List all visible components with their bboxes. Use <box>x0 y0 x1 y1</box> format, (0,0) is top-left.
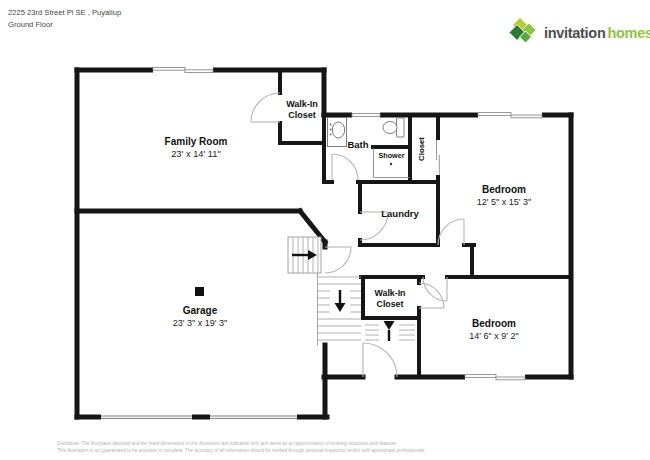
room-dims-garage: 23' 3" x 19' 3" <box>173 318 227 328</box>
room-label-walk-in-closet-mid-2: Closet <box>377 299 404 309</box>
room-label-bedroom-bottom: Bedroom <box>472 318 516 329</box>
header: 2225 23rd Street Pl SE , Puyallup Ground… <box>8 8 121 29</box>
room-label-family-room: Family Room <box>165 136 228 147</box>
room-dims-bedroom-right: 12' 5" x 15' 3" <box>477 197 531 207</box>
toilet-icon <box>383 118 404 137</box>
bedroom-right-door <box>438 219 464 245</box>
door-swings <box>251 93 464 377</box>
address-line-1: 2225 23rd Street Pl SE , Puyallup <box>8 8 121 17</box>
sink-icon <box>328 118 347 147</box>
bath-door <box>332 154 358 180</box>
logo-word-homes: homes <box>607 25 650 41</box>
room-label-walk-in-closet-mid-1: Walk-In <box>375 288 406 298</box>
room-dims-bedroom-bottom: 14' 6" x 9' 2" <box>469 331 518 341</box>
floor-plan-svg: 2225 23rd Street Pl SE , Puyallup Ground… <box>0 0 650 460</box>
invitation-homes-logo: invitationhomes <box>509 18 650 44</box>
disclaimer-line-1: Disclaimer: The floorplans depicted and … <box>57 441 397 446</box>
logo-wordmark: invitationhomes <box>544 25 650 41</box>
stairs-upper-run <box>288 237 321 273</box>
footer-disclaimer: Disclaimer: The floorplans depicted and … <box>57 441 425 453</box>
address-line-2: Ground Floor <box>8 20 53 29</box>
bedroom-bottom-window <box>465 374 525 381</box>
room-dims-family-room: 23' x 14' 11" <box>171 149 221 159</box>
garage-post <box>195 287 204 296</box>
room-label-walk-in-closet-top-2: Closet <box>288 110 316 120</box>
room-label-laundry: Laundry <box>381 208 419 219</box>
garage-landing-door <box>325 247 351 273</box>
room-label-walk-in-closet-top-1: Walk-In <box>286 99 318 109</box>
bedroom-right-window <box>478 112 542 119</box>
room-label-garage: Garage <box>183 305 218 316</box>
stairs-down-run <box>318 273 362 345</box>
entry-door <box>363 343 397 377</box>
floor-plan-page: 2225 23rd Street Pl SE , Puyallup Ground… <box>0 0 650 460</box>
room-label-closet: Closet <box>417 137 426 161</box>
room-label-bedroom-right: Bedroom <box>482 184 526 195</box>
logo-word-invitation: invitation <box>544 25 605 41</box>
stairs-up-run <box>365 320 415 343</box>
disclaimer-line-2: This illustration is not guaranteed to b… <box>57 448 425 453</box>
family-room-window <box>153 67 213 74</box>
bath-window <box>352 112 380 119</box>
room-label-bath: Bath <box>347 139 368 150</box>
walk-in-closet-top-door <box>251 93 280 122</box>
shower-drain-icon <box>390 163 392 165</box>
room-label-shower: Shower <box>379 151 405 160</box>
garage-door-left <box>101 414 192 421</box>
closet-sliding-door <box>435 140 441 175</box>
invitation-homes-logo-icon <box>509 18 536 44</box>
garage-door-right <box>210 414 297 421</box>
